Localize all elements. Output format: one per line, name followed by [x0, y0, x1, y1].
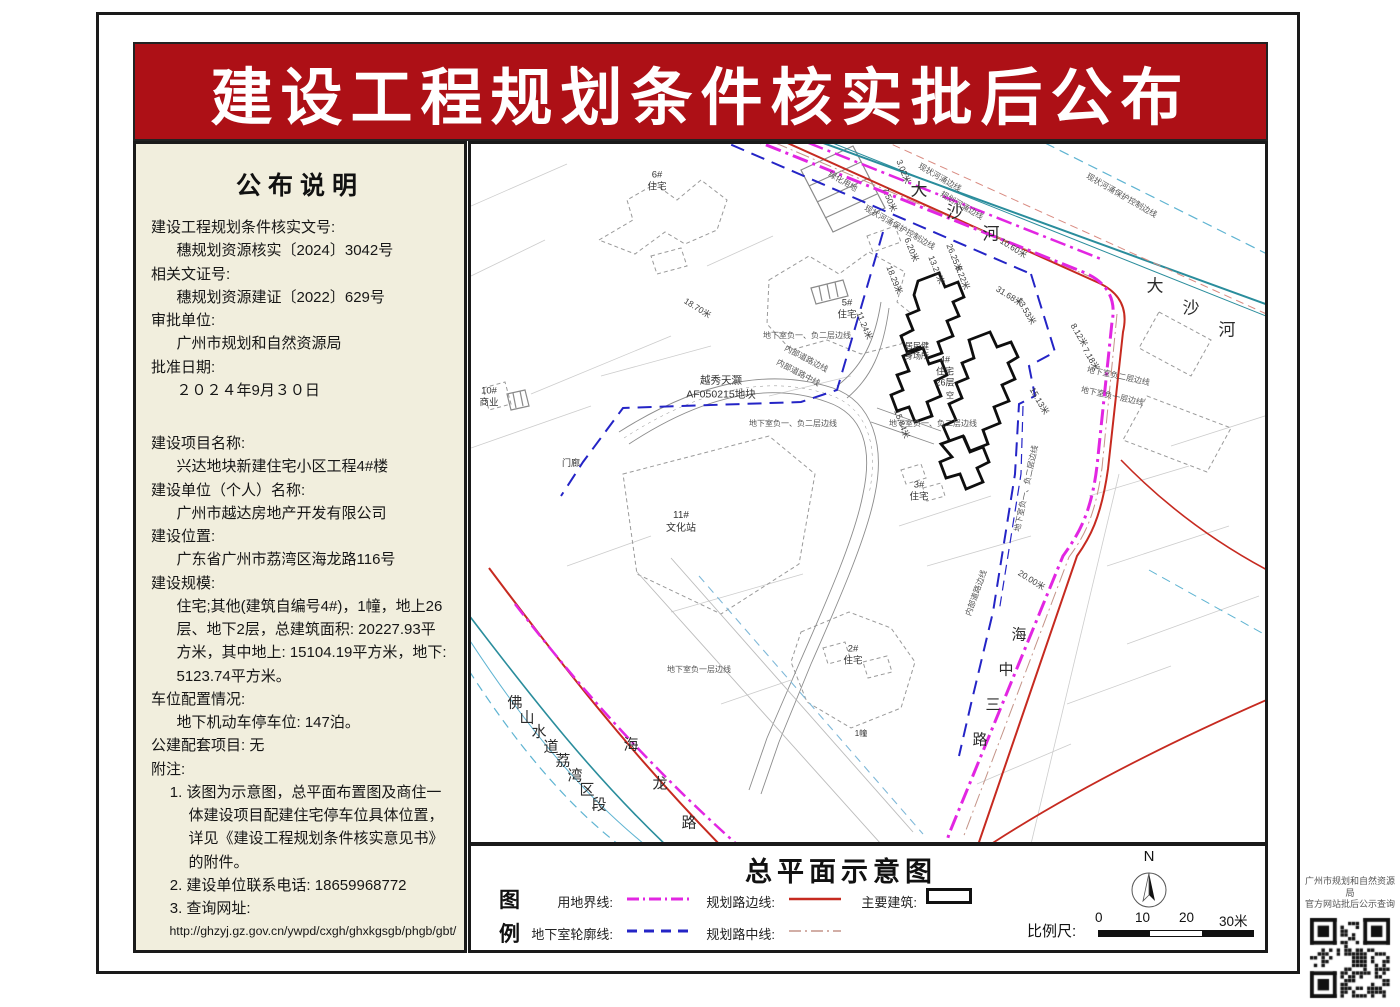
info-line: 广东省广州市荔湾区海龙路116号 [151, 548, 449, 571]
info-line: 建设规模: [151, 572, 449, 595]
internal-roads [619, 302, 941, 794]
legend-swatch-road-edge-line [787, 892, 843, 906]
info-line: ２０２４年9月３０日 [151, 379, 449, 402]
legend-label-basement: 地下室轮廓线: [507, 924, 613, 943]
site-plan-map: 大沙河大沙河佛山水道荔湾区段海龙路海中三路18.70米18.29米11.24米3… [468, 141, 1268, 845]
legend-swatch-parcel-line [625, 892, 691, 906]
info-panel: 公布说明 建设工程规划条件核实文号:穗规划资源核实〔2024〕3042号相关文证… [133, 141, 467, 953]
foshan-waterway-lines [471, 558, 923, 845]
legend-swatch-road-center-line [787, 924, 843, 938]
scale-bar [1098, 930, 1254, 937]
parcel-lines [471, 164, 1268, 844]
info-line: 建设位置: [151, 525, 449, 548]
scale-tick: 20 [1179, 910, 1194, 925]
info-line: 广州市规划和自然资源局 [151, 332, 449, 355]
announcement-doc-fields: 建设工程规划条件核实文号:穗规划资源核实〔2024〕3042号相关文证号:穗规划… [151, 216, 449, 402]
info-line: 地下机动车停车位: 147泊。 [151, 711, 449, 734]
info-line: 附注: [151, 758, 449, 781]
info-line: 3. 查询网址: [151, 897, 449, 920]
qr-panel: 广州市规划和自然资源局 官方网站批后公示查询 [1302, 876, 1398, 1007]
legend-swatch-basement-line [625, 924, 691, 938]
info-line: 公建配套项目: 无 [151, 734, 449, 757]
panel-heading: 公布说明 [151, 166, 449, 202]
legend-key-char-1: 图 [499, 884, 520, 914]
north-label: N [1139, 848, 1159, 865]
legend-swatch-main-building [926, 888, 972, 904]
site-plan-drawing [471, 144, 1268, 845]
qr-caption-line1: 广州市规划和自然资源局 [1302, 876, 1398, 899]
info-line: 1. 该图为示意图，总平面布置图及商住一体建设项目配建住宅停车位具体位置，详见《… [151, 781, 449, 874]
legend-label-road-center: 规划路中线: [699, 924, 775, 943]
query-url[interactable]: http://ghzyj.gz.gov.cn/ywpd/cxgh/ghxkgsg… [151, 920, 449, 942]
announcement-project-fields: 建设项目名称:兴达地块新建住宅小区工程4#楼建设单位（个人）名称:广州市越达房地… [151, 432, 449, 942]
info-line: 兴达地块新建住宅小区工程4#楼 [151, 455, 449, 478]
page-title-banner: 建设工程规划条件核实批后公布 [133, 42, 1268, 141]
info-line: 车位配置情况: [151, 688, 449, 711]
info-line: 批准日期: [151, 356, 449, 379]
info-line: 相关文证号: [151, 263, 449, 286]
info-line: 穗规划资源建证〔2022〕629号 [151, 286, 449, 309]
info-line: 建设单位（个人）名称: [151, 479, 449, 502]
main-building-outline [891, 273, 1018, 489]
scale-tick: 0 [1095, 910, 1103, 925]
parcel-boundary-lines [739, 144, 1113, 845]
panel-gap [151, 402, 449, 432]
info-line: 广州市越达房地产开发有限公司 [151, 502, 449, 525]
hatched-buildings [507, 146, 885, 410]
legend-label-parcel: 用地界线: [527, 892, 613, 911]
north-arrow-icon [1127, 864, 1171, 912]
legend-label-road-edge: 规划路边线: [699, 892, 775, 911]
legend: 总平面示意图 图 例 用地界线: 地下室轮廓线: 规划路边线: 规划路中线: 主… [468, 843, 1268, 953]
planning-road-lines [752, 144, 1268, 845]
qr-caption-line2: 官方网站批后公示查询 [1302, 899, 1398, 911]
scale-tick: 10 [1135, 910, 1150, 925]
qr-code [1306, 914, 1394, 1002]
scale-label: 比例尺: [1027, 920, 1076, 941]
context-buildings [483, 180, 1231, 728]
info-line: 建设工程规划条件核实文号: [151, 216, 449, 239]
legend-label-building: 主要建筑: [855, 892, 917, 911]
scale-tick: 30米 [1219, 910, 1248, 930]
page-title: 建设工程规划条件核实批后公布 [210, 47, 1190, 137]
info-line: 建设项目名称: [151, 432, 449, 455]
info-line: 审批单位: [151, 309, 449, 332]
info-line: 2. 建设单位联系电话: 18659968772 [151, 874, 449, 897]
info-line: 住宅;其他(建筑自编号4#)，1幢，地上26层、地下2层，总建筑面积: 2022… [151, 595, 449, 688]
info-line: 穗规划资源核实〔2024〕3042号 [151, 239, 449, 262]
plan-title: 总平面示意图 [641, 850, 1041, 889]
